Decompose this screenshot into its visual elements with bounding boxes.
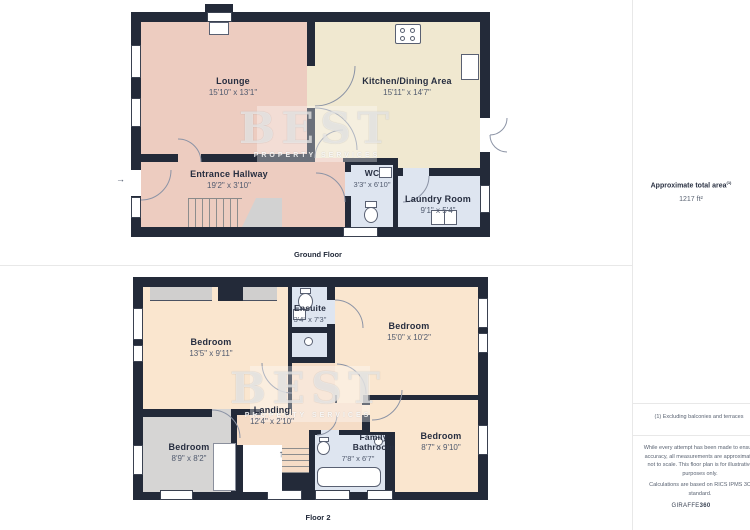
area-footnote: (1) Excluding balconies and terraces: [632, 414, 750, 420]
disclaimer-text: While every attempt has been made to ens…: [632, 444, 750, 478]
ground-floor-plan: BEST PROPERTY SERVICES Lounge 15'10" x 1…: [131, 12, 490, 237]
standard-text: Calculations are based on RICS IPMS 3C s…: [632, 481, 750, 498]
watermark-title: BEST: [218, 368, 398, 411]
info-sidebar: Approximate total area(1) 1217 ft² (1) E…: [632, 0, 750, 530]
watermark-title: BEST: [227, 108, 407, 151]
total-area-value: 1217 ft²: [632, 196, 750, 203]
brand-logo: GIRAFFE360: [632, 503, 750, 509]
total-area-title: Approximate total area(1): [632, 180, 750, 189]
floor2-plan: ↑ BEST PROPERTY SERVICES Bedroom 13'5" x…: [133, 277, 488, 500]
watermark-subtitle: PROPERTY SERVICES: [218, 412, 398, 419]
floors-divider-line: [0, 265, 632, 266]
floor2-label: Floor 2: [0, 513, 636, 522]
area-footnote-marker: (1): [726, 180, 731, 185]
floorplan-page: { "watermark": { "title": "BEST", "subti…: [0, 0, 750, 530]
entrance-arrow-icon: →: [116, 174, 125, 184]
ground-floor-label: Ground Floor: [0, 250, 636, 259]
watermark-subtitle: PROPERTY SERVICES: [227, 152, 407, 159]
